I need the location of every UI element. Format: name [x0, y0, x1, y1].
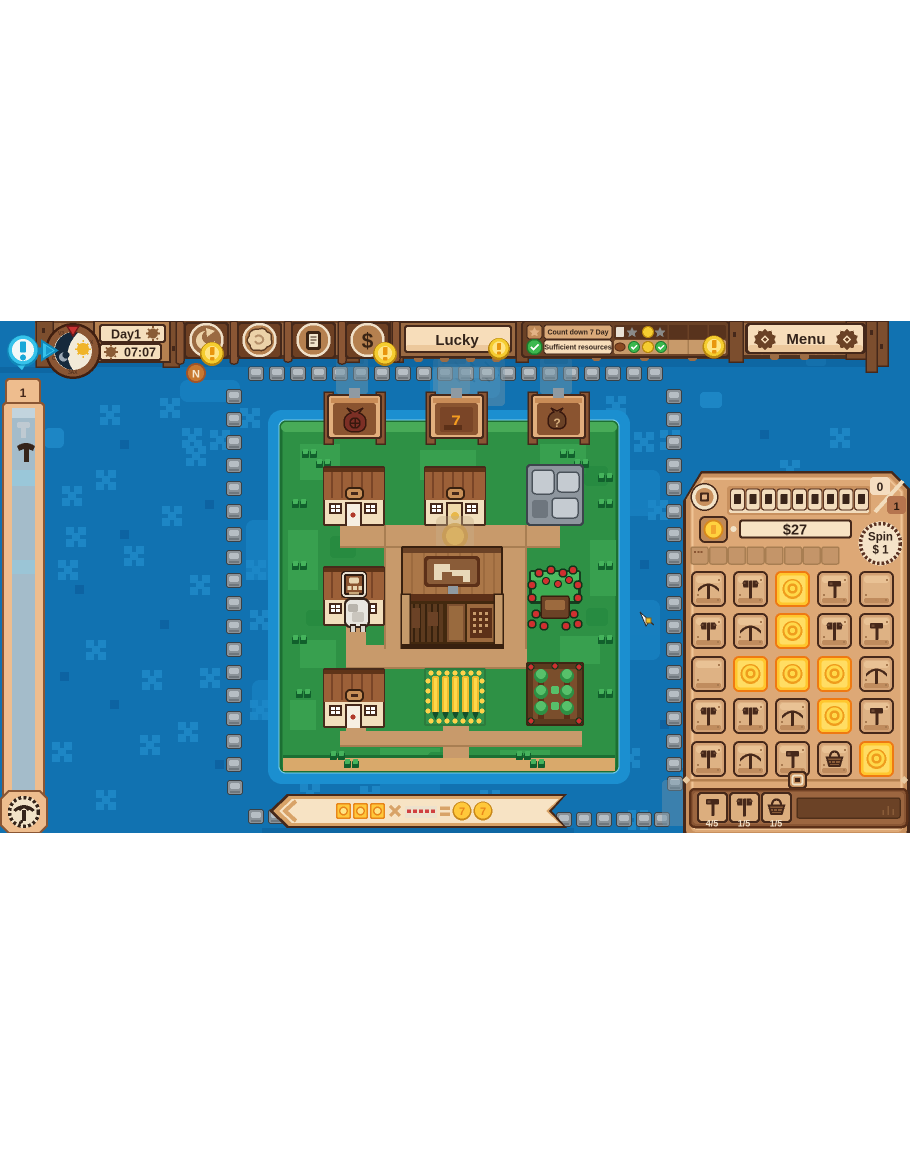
svg-text:1/5: 1/5	[738, 819, 751, 829]
svg-text:C: C	[52, 356, 56, 362]
svg-text:Day1: Day1	[111, 328, 141, 342]
svg-text:Lucky: Lucky	[435, 332, 479, 349]
svg-text:07:07: 07:07	[124, 346, 156, 360]
svg-text:4/5: 4/5	[706, 819, 719, 829]
svg-text:N: N	[192, 369, 200, 381]
svg-text:Sufficient resources: Sufficient resources	[544, 345, 611, 352]
svg-text:0: 0	[877, 480, 884, 494]
svg-text:V3: V3	[58, 331, 64, 337]
svg-text:Count down 7 Day: Count down 7 Day	[547, 330, 608, 337]
svg-text:1/5: 1/5	[770, 819, 783, 829]
svg-text:$: $	[362, 330, 374, 353]
svg-text:1: 1	[893, 501, 899, 513]
svg-text:$ 1: $ 1	[873, 545, 890, 557]
svg-text:?: ?	[553, 416, 560, 430]
svg-text:$27: $27	[783, 523, 807, 539]
svg-text:Spin: Spin	[868, 532, 893, 544]
svg-text:1: 1	[20, 386, 27, 400]
svg-text:Menu: Menu	[786, 331, 825, 348]
svg-text:7: 7	[459, 806, 465, 818]
svg-text:7: 7	[480, 806, 486, 818]
svg-text:3AX: 3AX	[68, 370, 78, 376]
